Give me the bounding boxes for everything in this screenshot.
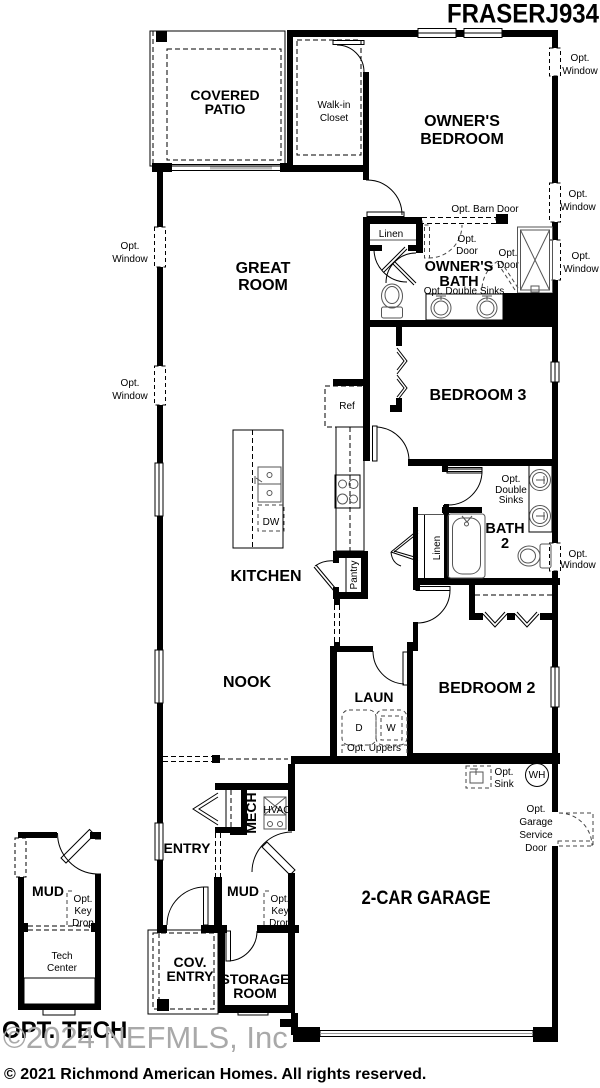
svg-text:NOOK: NOOK: [223, 674, 271, 691]
svg-text:Sinks: Sinks: [499, 495, 523, 506]
svg-text:Opt. Double Sinks: Opt. Double Sinks: [424, 286, 505, 297]
svg-text:BEDROOM 2: BEDROOM 2: [439, 680, 536, 697]
svg-text:Window: Window: [563, 264, 599, 275]
svg-text:Window: Window: [560, 202, 596, 213]
svg-text:PATIO: PATIO: [205, 101, 246, 117]
svg-text:Linen: Linen: [432, 536, 443, 560]
svg-text:ROOM: ROOM: [238, 277, 288, 294]
svg-text:Walk-in: Walk-in: [318, 100, 351, 111]
svg-text:Window: Window: [112, 391, 148, 402]
svg-text:Opt.: Opt.: [499, 248, 518, 259]
svg-text:Window: Window: [560, 560, 596, 571]
svg-text:Opt.: Opt.: [458, 234, 477, 245]
svg-text:Opt.: Opt.: [569, 189, 588, 200]
svg-text:Door: Door: [456, 246, 478, 257]
svg-text:Opt.: Opt.: [121, 378, 140, 389]
svg-text:BEDROOM: BEDROOM: [420, 131, 504, 148]
svg-text:ENTRY: ENTRY: [164, 840, 212, 856]
svg-text:Garage: Garage: [519, 817, 553, 828]
svg-text:Opt.: Opt.: [527, 804, 546, 815]
svg-text:Pantry: Pantry: [349, 561, 360, 590]
svg-text:Sink: Sink: [494, 779, 514, 790]
svg-text:OWNER'S: OWNER'S: [425, 259, 494, 275]
svg-text:WH: WH: [529, 770, 546, 781]
svg-text:Tech: Tech: [51, 951, 72, 962]
svg-text:Closet: Closet: [320, 113, 349, 124]
svg-text:Key: Key: [271, 906, 288, 917]
svg-text:2-CAR GARAGE: 2-CAR GARAGE: [362, 888, 491, 909]
svg-text:Center: Center: [47, 963, 78, 974]
svg-text:Opt.: Opt.: [74, 894, 93, 905]
svg-text:ENTRY: ENTRY: [167, 968, 215, 984]
svg-text:2: 2: [501, 536, 509, 552]
svg-text:Opt. Uppers: Opt. Uppers: [347, 743, 401, 754]
svg-text:LAUN: LAUN: [355, 689, 394, 705]
svg-text:HVAC: HVAC: [263, 805, 290, 816]
svg-text:OWNER'S: OWNER'S: [424, 113, 500, 130]
svg-text:©2024 NEFMLS, Inc: ©2024 NEFMLS, Inc: [3, 1020, 288, 1055]
svg-text:MUD: MUD: [227, 883, 259, 899]
svg-text:FRASERJ934: FRASERJ934: [447, 0, 599, 29]
svg-text:GREAT: GREAT: [236, 260, 291, 277]
svg-text:Opt.: Opt.: [271, 894, 290, 905]
svg-text:Opt.: Opt.: [121, 241, 140, 252]
svg-text:MECH: MECH: [243, 792, 259, 833]
svg-text:Opt.: Opt.: [495, 767, 514, 778]
svg-text:Linen: Linen: [379, 229, 403, 240]
svg-text:Service: Service: [519, 830, 553, 841]
svg-text:Opt.: Opt.: [572, 251, 591, 262]
svg-text:BATH: BATH: [485, 521, 524, 537]
svg-text:Ref: Ref: [339, 401, 355, 412]
svg-text:Drop: Drop: [72, 918, 94, 929]
svg-text:Window: Window: [562, 66, 598, 77]
svg-text:Door: Door: [497, 260, 519, 271]
svg-text:Opt.: Opt.: [571, 53, 590, 64]
svg-text:KITCHEN: KITCHEN: [230, 568, 301, 585]
svg-text:Key: Key: [74, 906, 91, 917]
svg-text:© 2021 Richmond American Homes: © 2021 Richmond American Homes. All righ…: [4, 1066, 426, 1083]
svg-text:D: D: [355, 723, 362, 734]
svg-text:Opt.: Opt.: [569, 549, 588, 560]
svg-text:Opt. Barn Door: Opt. Barn Door: [451, 204, 519, 215]
svg-text:MUD: MUD: [32, 883, 64, 899]
svg-text:Door: Door: [525, 843, 547, 854]
svg-text:ROOM: ROOM: [233, 985, 277, 1001]
svg-text:DW: DW: [263, 517, 280, 528]
svg-text:W: W: [386, 723, 396, 734]
svg-text:BEDROOM 3: BEDROOM 3: [430, 387, 527, 404]
svg-text:Window: Window: [112, 254, 148, 265]
svg-text:Opt.: Opt.: [502, 474, 521, 485]
